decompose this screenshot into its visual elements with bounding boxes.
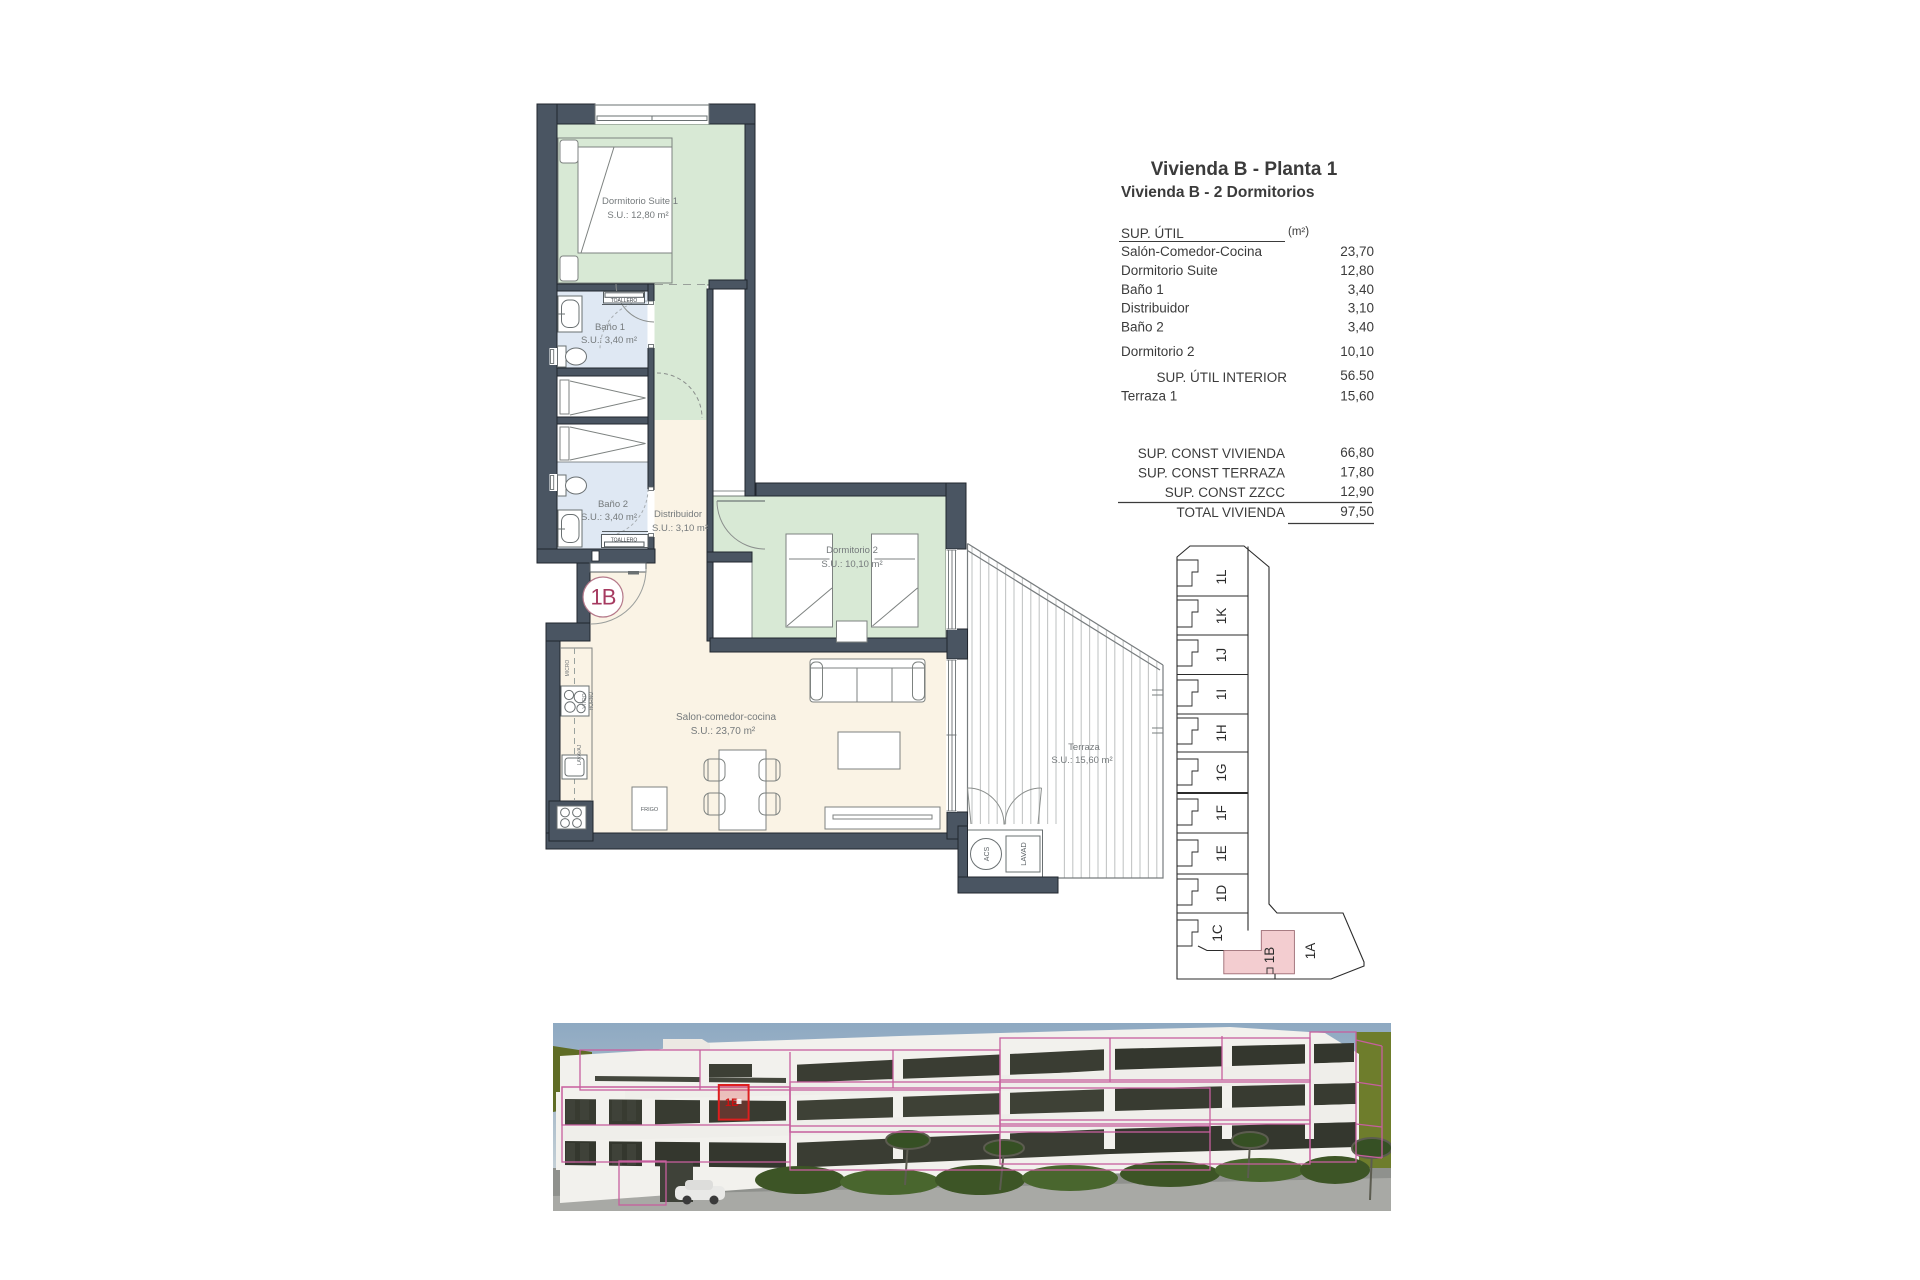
svg-text:HORNO: HORNO xyxy=(589,692,595,711)
svg-text:1H: 1H xyxy=(1214,724,1229,741)
svg-text:1J: 1J xyxy=(1214,648,1229,662)
svg-text:S.U.: 12,80 m²: S.U.: 12,80 m² xyxy=(607,210,668,221)
svg-text:10,10: 10,10 xyxy=(1340,344,1374,359)
svg-text:Baño 2: Baño 2 xyxy=(1121,320,1164,335)
svg-text:Salon-comedor-cocina: Salon-comedor-cocina xyxy=(676,712,776,723)
svg-text:SUP. CONST ZZCC: SUP. CONST ZZCC xyxy=(1165,485,1286,500)
svg-text:S.U.: 3,10 m²: S.U.: 3,10 m² xyxy=(652,523,708,534)
svg-text:1D: 1D xyxy=(1214,885,1229,903)
svg-text:VITRO: VITRO xyxy=(582,693,588,708)
svg-text:17,80: 17,80 xyxy=(1340,465,1374,480)
svg-text:1A: 1A xyxy=(1303,943,1318,960)
svg-text:SUP. CONST TERRAZA: SUP. CONST TERRAZA xyxy=(1138,466,1285,481)
svg-text:3,40: 3,40 xyxy=(1348,320,1374,335)
svg-text:56.50: 56.50 xyxy=(1340,368,1374,383)
svg-text:1B: 1B xyxy=(591,585,616,610)
svg-text:Distribuidor: Distribuidor xyxy=(654,509,702,520)
svg-text:Terraza: Terraza xyxy=(1068,742,1100,753)
svg-text:MICRO: MICRO xyxy=(565,660,571,677)
svg-text:SUP. CONST VIVIENDA: SUP. CONST VIVIENDA xyxy=(1138,446,1285,461)
svg-text:Dormitorio Suite: Dormitorio Suite xyxy=(1121,263,1218,278)
svg-text:15,60: 15,60 xyxy=(1340,389,1374,404)
svg-text:Dormitorio 2: Dormitorio 2 xyxy=(1121,344,1195,359)
svg-text:Salón-Comedor-Cocina: Salón-Comedor-Cocina xyxy=(1121,244,1263,259)
svg-text:Dormitorio Suite 1: Dormitorio Suite 1 xyxy=(602,196,678,207)
svg-text:1B: 1B xyxy=(1262,947,1277,964)
svg-text:Baño 2: Baño 2 xyxy=(598,499,628,510)
svg-text:FRIGO: FRIGO xyxy=(641,807,659,813)
svg-text:1E: 1E xyxy=(1214,845,1229,862)
svg-text:3,10: 3,10 xyxy=(1348,301,1374,316)
svg-text:LAVAD: LAVAD xyxy=(1019,842,1028,866)
svg-text:66,80: 66,80 xyxy=(1340,445,1374,460)
svg-text:1L: 1L xyxy=(1214,569,1229,585)
svg-text:Baño 1: Baño 1 xyxy=(1121,282,1164,297)
svg-text:SUP. ÚTIL INTERIOR: SUP. ÚTIL INTERIOR xyxy=(1156,370,1287,385)
svg-text:ACS: ACS xyxy=(984,846,991,861)
svg-text:1F: 1F xyxy=(1214,805,1229,821)
svg-text:12,90: 12,90 xyxy=(1340,484,1374,499)
svg-text:S.U.: 23,70 m²: S.U.: 23,70 m² xyxy=(691,726,756,737)
svg-text:Vivienda B - 2 Dormitorios: Vivienda B - 2 Dormitorios xyxy=(1121,184,1315,201)
svg-text:(m²): (m²) xyxy=(1288,226,1309,238)
svg-text:Terraza 1: Terraza 1 xyxy=(1121,389,1177,404)
svg-text:Vivienda B - Planta 1: Vivienda B - Planta 1 xyxy=(1151,159,1338,180)
svg-text:12,80: 12,80 xyxy=(1340,263,1374,278)
svg-text:S.U.: 3,40 m²: S.U.: 3,40 m² xyxy=(581,512,637,523)
svg-text:LAVAVAJ: LAVAVAJ xyxy=(577,744,583,765)
svg-text:97,50: 97,50 xyxy=(1340,504,1374,519)
svg-text:1G: 1G xyxy=(1214,763,1229,781)
svg-text:Distribuidor: Distribuidor xyxy=(1121,301,1190,316)
svg-text:Dormitorio 2: Dormitorio 2 xyxy=(826,545,878,556)
svg-text:TOALLERO: TOALLERO xyxy=(611,538,638,544)
svg-text:3,40: 3,40 xyxy=(1348,282,1374,297)
svg-text:Baño 1: Baño 1 xyxy=(595,322,625,333)
svg-text:1K: 1K xyxy=(1214,608,1229,625)
svg-text:1C: 1C xyxy=(1210,924,1225,942)
svg-text:1I: 1I xyxy=(1214,689,1229,700)
svg-text:SUP. ÚTIL: SUP. ÚTIL xyxy=(1121,226,1184,241)
svg-text:23,70: 23,70 xyxy=(1340,244,1374,259)
svg-text:S.U.: 10,10 m²: S.U.: 10,10 m² xyxy=(821,559,882,570)
svg-text:TOTAL VIVIENDA: TOTAL VIVIENDA xyxy=(1176,505,1285,520)
svg-text:TOALLERO: TOALLERO xyxy=(611,298,638,304)
svg-text:S.U.: 3,40 m²: S.U.: 3,40 m² xyxy=(581,335,637,346)
svg-text:S.U.: 15,60 m²: S.U.: 15,60 m² xyxy=(1051,755,1112,766)
